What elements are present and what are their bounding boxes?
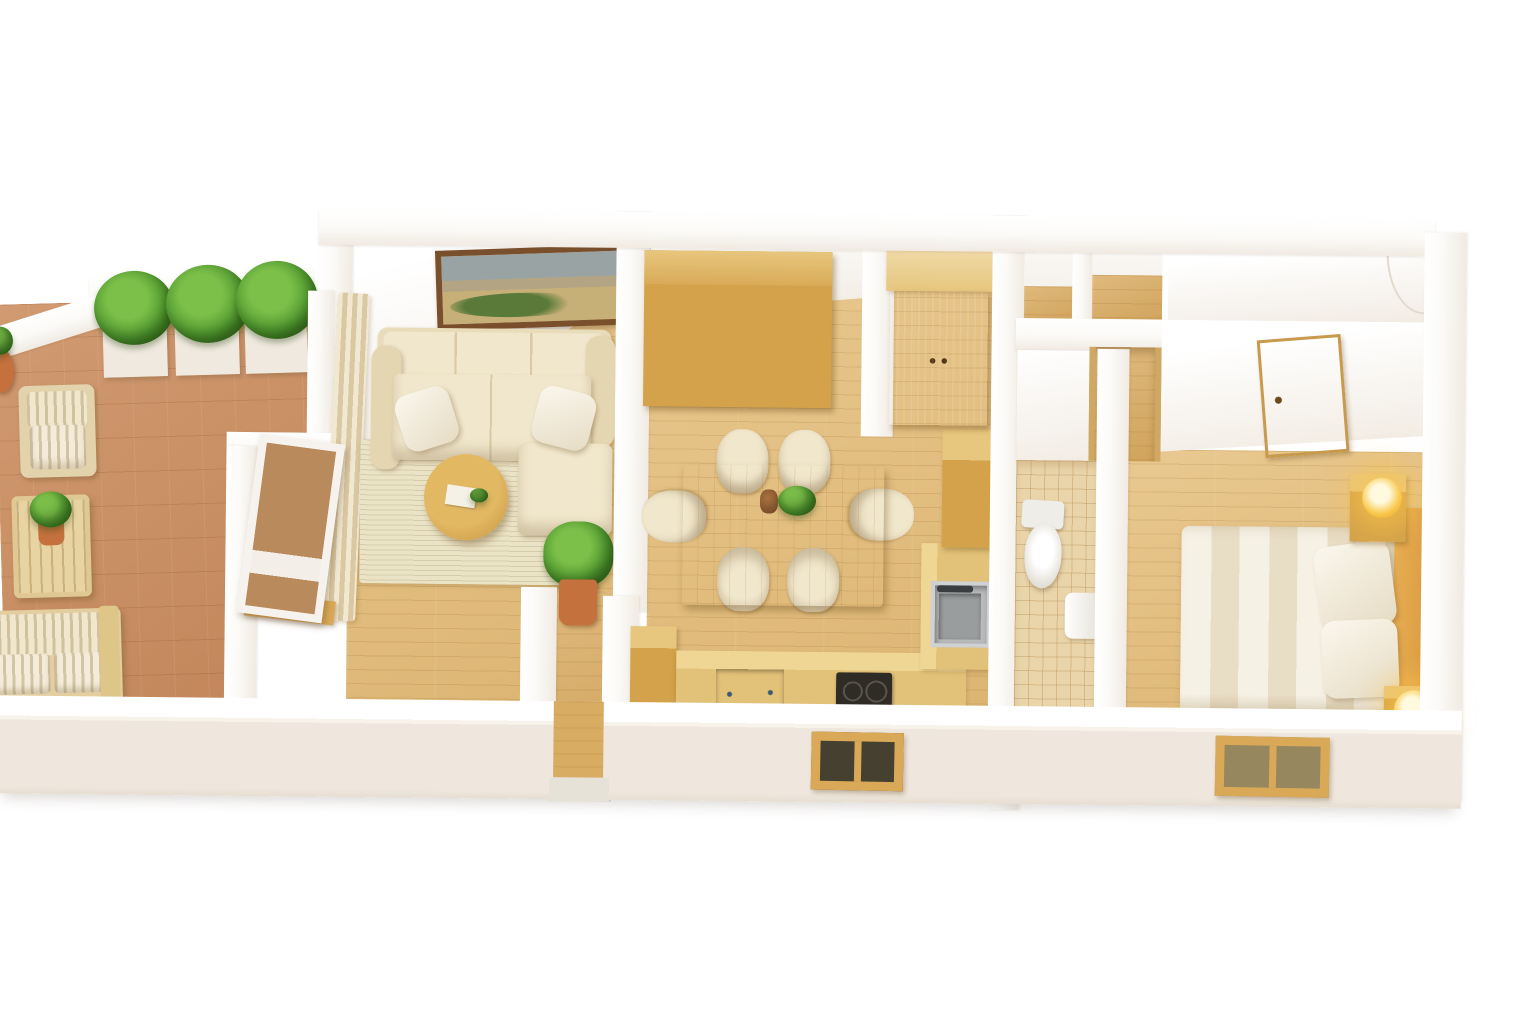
- wardrobe-top-slab: [886, 251, 992, 292]
- table-decor-plant: [470, 488, 488, 502]
- sofa-back-cushions: [383, 331, 605, 375]
- entry-gap: [553, 701, 604, 782]
- dining-table-plant: [778, 486, 816, 516]
- kitchen-island: [630, 626, 677, 710]
- bedroom-window: [1215, 736, 1330, 798]
- shelving-cubbies: [647, 284, 828, 362]
- sink-faucet: [937, 585, 973, 592]
- kitchen-window-mullion: [854, 741, 862, 781]
- tall-cabinet: [942, 429, 997, 548]
- table-vase: [760, 489, 778, 513]
- floorplan-scene: [0, 0, 1536, 1024]
- bedroom-window-mullion: [1269, 746, 1277, 788]
- potted-plant-leaves: [543, 521, 614, 588]
- hall-wall-block: [1016, 350, 1089, 463]
- bath-bedroom-wall: [1094, 349, 1130, 715]
- bedroom-door: [1257, 334, 1350, 458]
- kitchen-window: [811, 732, 904, 792]
- shelving-cabinet-doors: [647, 360, 827, 406]
- niche-2-floor: [1092, 275, 1162, 324]
- shelving-top-slab: [644, 250, 832, 286]
- apartment-group: [0, 0, 1536, 1024]
- entry-mat-outer: [549, 777, 609, 802]
- living-west-wall-outer: [307, 291, 335, 441]
- dining-table: [681, 465, 884, 607]
- niche-1-floor: [1024, 286, 1074, 323]
- bathroom-floor: [1014, 460, 1099, 713]
- wardrobe-doors: [889, 291, 988, 426]
- bath-wall-fixture: [1065, 593, 1097, 639]
- lamp-top: [1362, 478, 1402, 518]
- potted-plant-pot: [559, 579, 597, 625]
- sink-basin: [939, 593, 981, 639]
